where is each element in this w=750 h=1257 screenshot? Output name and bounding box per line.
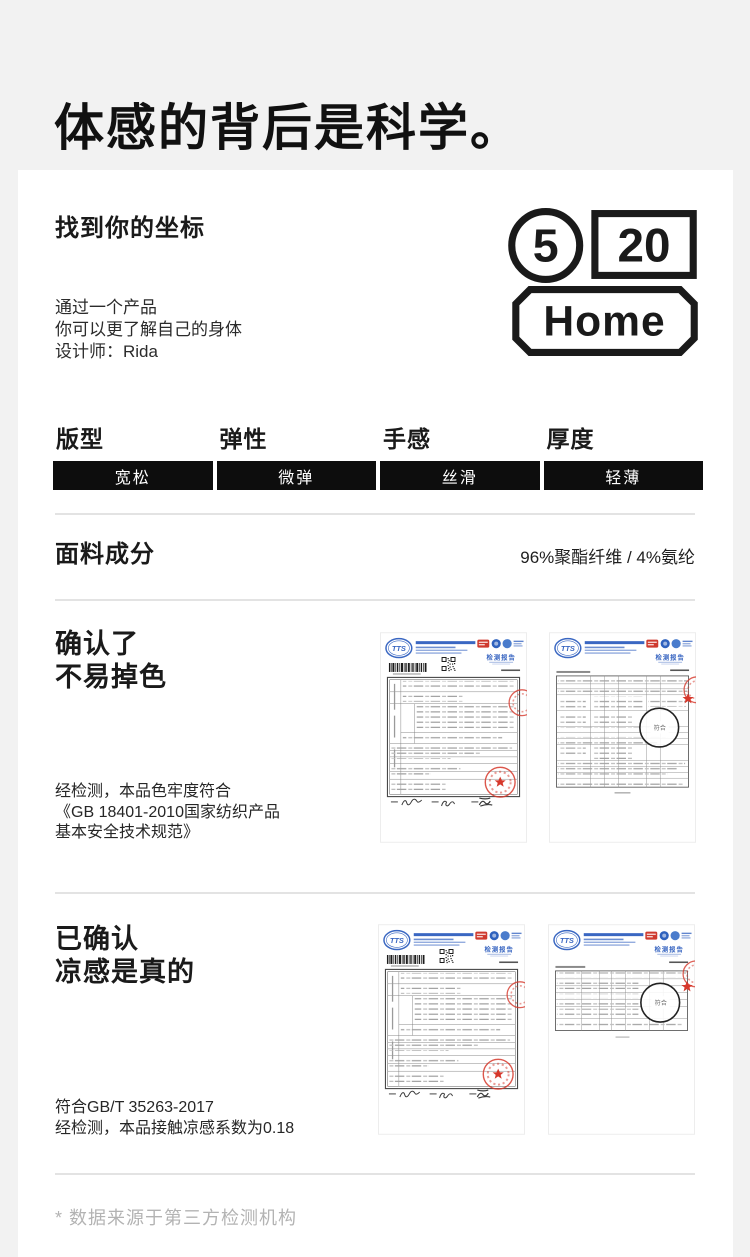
- cooling-heading-line-2: 凉感是真的: [55, 956, 195, 989]
- fabric-value: 96%聚酯纤维 / 4%氨纶: [520, 543, 695, 568]
- fabric-label: 面料成分: [55, 534, 155, 569]
- attribute-col-stretch: 弹性 微弹: [217, 420, 377, 490]
- colorfast-body: 经检测，本品色牢度符合 《GB 18401-2010国家纺织产品 基本安全技术规…: [55, 782, 280, 844]
- divider: [55, 1173, 695, 1175]
- attribute-label: 厚度: [544, 420, 704, 454]
- pass-label-text: 符合: [655, 999, 667, 1007]
- pass-label-text: 符合: [654, 724, 666, 732]
- cooling-heading-line-1: 已确认: [55, 923, 195, 956]
- attribute-label: 弹性: [217, 420, 377, 454]
- cooling-heading: 已确认 凉感是真的: [55, 923, 195, 989]
- content-card: 找到你的坐标 通过一个产品 你可以更了解自己的身体 设计师：Rida 5 20 …: [18, 170, 733, 1257]
- hero-title: 体感的背后是科学。: [54, 88, 522, 160]
- test-report-colorfast-1: [380, 632, 527, 843]
- attribute-row: 版型 宽松 弹性 微弹 手感 丝滑 厚度 轻薄: [53, 420, 703, 490]
- pass-circle-stamp: 符合: [640, 708, 679, 747]
- attribute-col-touch: 手感 丝滑: [380, 420, 540, 490]
- test-report-cooling-2: 符合: [548, 924, 695, 1135]
- attribute-col-thickness: 厚度 轻薄: [544, 420, 704, 490]
- attribute-label: 版型: [53, 420, 213, 454]
- logo-number-5: 5: [533, 220, 559, 272]
- colorfast-heading-line-2: 不易掉色: [55, 661, 167, 694]
- colorfast-body-line-2: 《GB 18401-2010国家纺织产品: [55, 803, 280, 824]
- colorfast-body-line-1: 经检测，本品色牢度符合: [55, 782, 280, 803]
- intro-body: 通过一个产品 你可以更了解自己的身体 设计师：Rida: [55, 297, 242, 363]
- pass-circle-stamp: 符合: [641, 983, 680, 1022]
- footnote: * 数据来源于第三方检测机构: [55, 1204, 297, 1230]
- cooling-body-line-2: 经检测，本品接触凉感系数为0.18: [55, 1119, 294, 1140]
- intro-line-2: 你可以更了解自己的身体: [55, 319, 242, 341]
- test-report-colorfast-2: 符合: [549, 632, 696, 843]
- cooling-body: 符合GB/T 35263-2017 经检测，本品接触凉感系数为0.18: [55, 1098, 294, 1139]
- attribute-col-fit: 版型 宽松: [53, 420, 213, 490]
- attribute-value-bar: 丝滑: [380, 461, 540, 490]
- test-report-cooling-1: [378, 924, 525, 1135]
- logo-home-text: Home: [543, 298, 665, 346]
- attribute-value-bar: 微弹: [217, 461, 377, 490]
- colorfast-body-line-3: 基本安全技术规范》: [55, 823, 280, 844]
- divider: [55, 599, 695, 601]
- intro-line-3: 设计师：Rida: [55, 341, 242, 363]
- colorfast-heading-line-1: 确认了: [55, 628, 167, 661]
- intro-heading: 找到你的坐标: [55, 208, 205, 243]
- brand-logo-520home: 5 20 Home: [508, 208, 698, 356]
- intro-line-1: 通过一个产品: [55, 297, 242, 319]
- divider: [55, 892, 695, 894]
- colorfast-heading: 确认了 不易掉色: [55, 628, 167, 694]
- logo-number-20: 20: [618, 220, 671, 273]
- attribute-value-bar: 宽松: [53, 461, 213, 490]
- attribute-label: 手感: [380, 420, 540, 454]
- attribute-value-bar: 轻薄: [544, 461, 704, 490]
- cooling-body-line-1: 符合GB/T 35263-2017: [55, 1098, 294, 1119]
- divider: [55, 513, 695, 515]
